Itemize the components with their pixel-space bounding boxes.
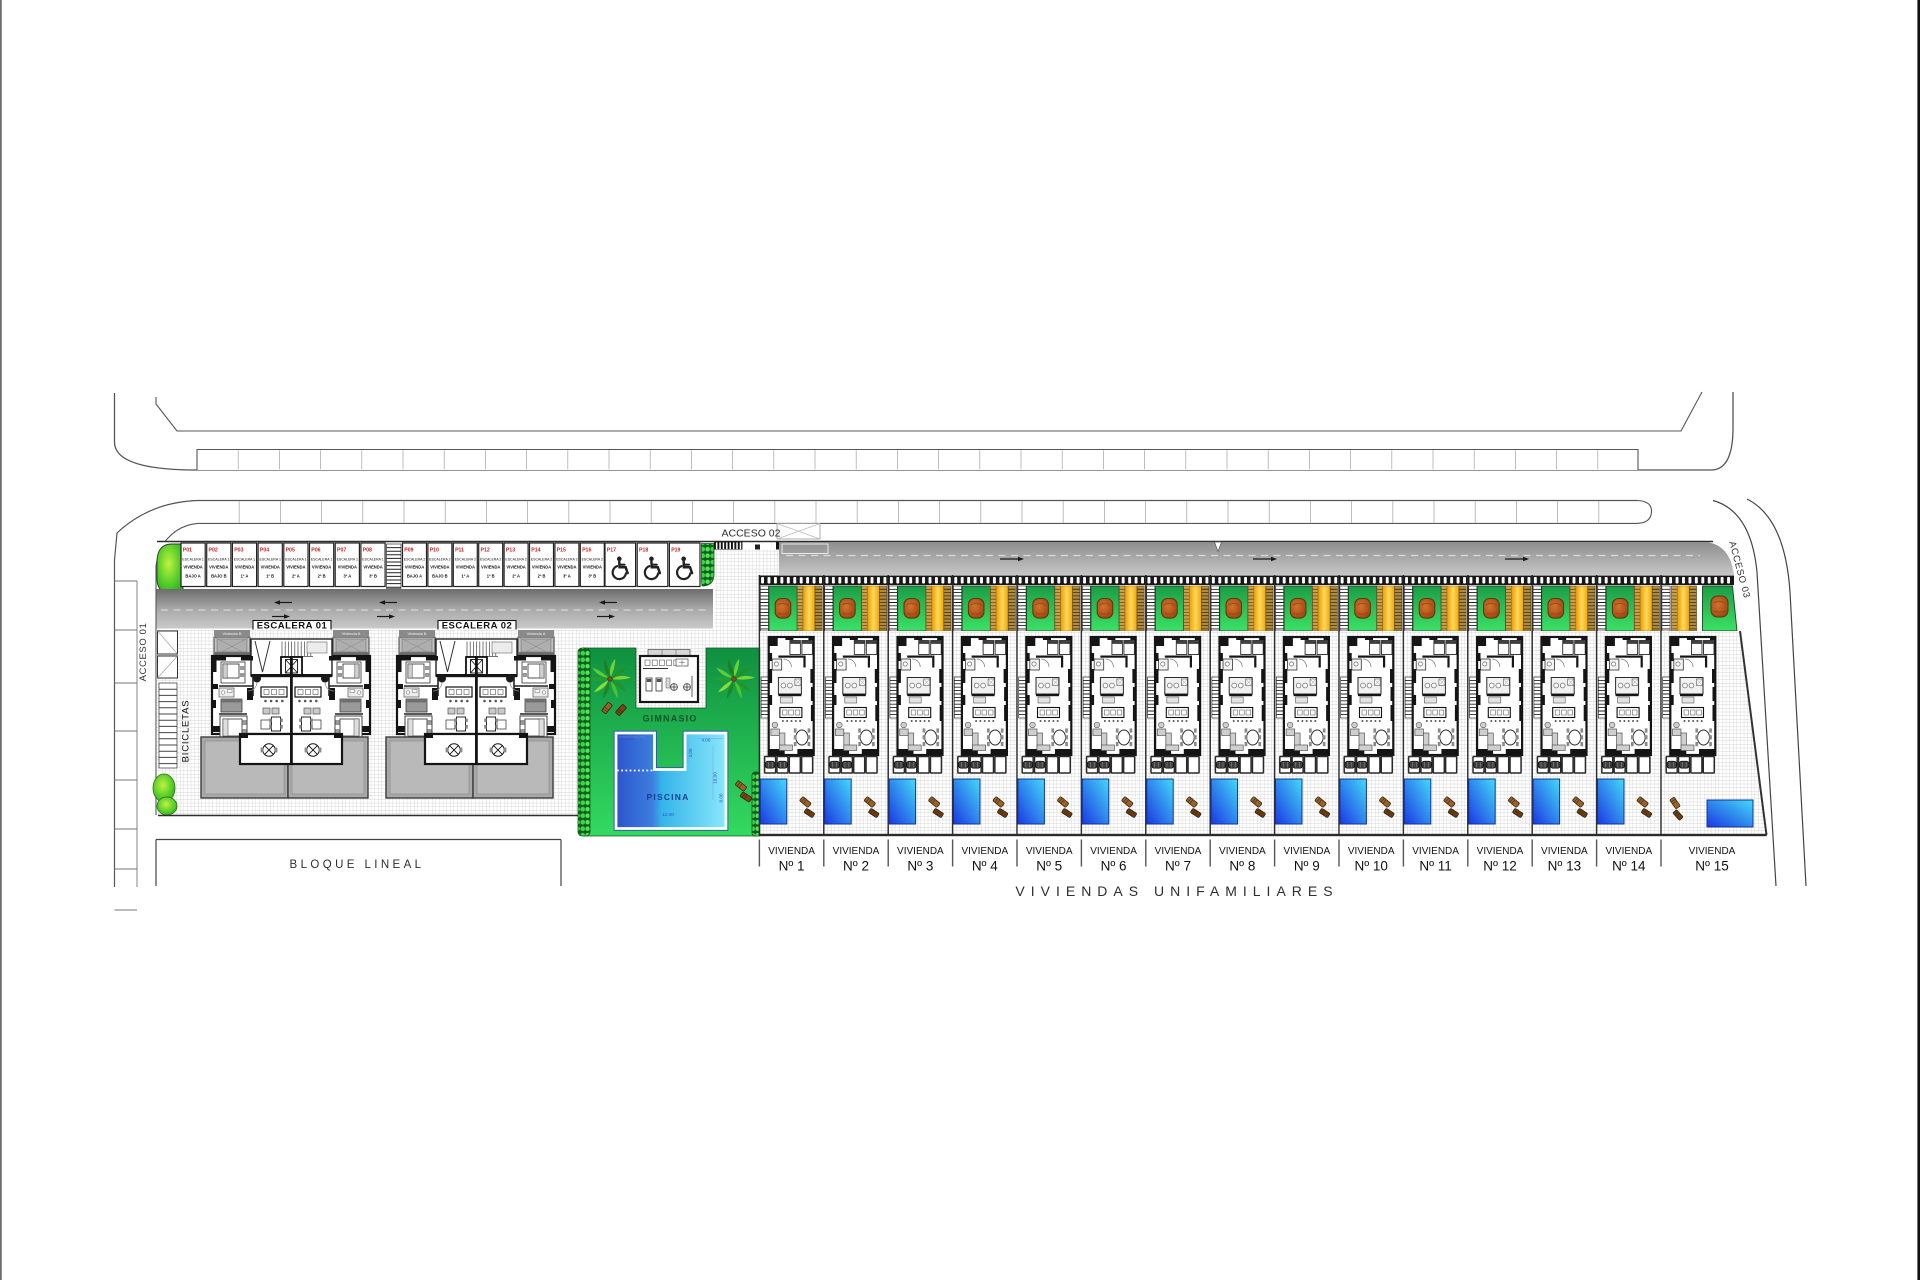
svg-text:P10: P10 [430,548,439,554]
svg-text:VIVIENDA: VIVIENDA [1219,846,1266,857]
svg-text:ACCESO 02: ACCESO 02 [722,528,781,540]
svg-text:ESCALERA 1: ESCALERA 1 [259,558,280,562]
svg-text:P08: P08 [363,548,372,554]
svg-text:Nº 11: Nº 11 [1419,859,1451,874]
svg-text:ESCALERA 2: ESCALERA 2 [455,558,476,562]
svg-text:P07: P07 [337,548,346,554]
svg-text:VIVIENDA: VIVIENDA [583,565,602,570]
svg-text:P05: P05 [286,548,295,554]
svg-text:12.00: 12.00 [662,812,674,817]
svg-text:1º A: 1º A [461,574,469,579]
svg-text:Nº 6: Nº 6 [1101,859,1127,874]
svg-text:P14: P14 [531,548,540,554]
svg-text:P06: P06 [311,548,320,554]
svg-text:Nº 4: Nº 4 [972,859,998,874]
svg-text:VIVIENDA: VIVIENDA [532,565,551,570]
svg-text:BICICLETAS: BICICLETAS [181,700,192,763]
svg-text:VIVIENDA: VIVIENDA [1348,846,1395,857]
svg-text:ESCALERA 2: ESCALERA 2 [404,558,425,562]
svg-text:VIVIENDA: VIVIENDA [1541,846,1588,857]
svg-text:VIVIENDA: VIVIENDA [1090,846,1137,857]
svg-text:Nº 10: Nº 10 [1354,859,1387,874]
svg-text:VIVIENDA: VIVIENDA [1155,846,1202,857]
svg-text:3º A: 3º A [563,574,571,579]
svg-text:10.00: 10.00 [713,772,718,784]
svg-text:Nº 3: Nº 3 [907,859,933,874]
svg-text:VIVIENDA: VIVIENDA [1026,846,1073,857]
svg-text:ESCALERA 1: ESCALERA 1 [311,558,332,562]
svg-text:VIVIENDA: VIVIENDA [363,565,382,570]
svg-text:Nº 7: Nº 7 [1165,859,1191,874]
svg-text:ESCALERA 2: ESCALERA 2 [556,558,577,562]
svg-text:VIVIENDA: VIVIENDA [405,565,424,570]
svg-text:VIVIENDA: VIVIENDA [235,565,254,570]
svg-text:4.00: 4.00 [625,736,634,741]
svg-text:P01: P01 [183,548,192,554]
svg-text:VIVIENDA: VIVIENDA [286,565,305,570]
svg-text:Nº 9: Nº 9 [1294,859,1320,874]
svg-text:P04: P04 [260,548,269,554]
svg-text:VIVIENDA: VIVIENDA [1689,846,1736,857]
svg-text:VIVIENDAS UNIFAMILIARES: VIVIENDAS UNIFAMILIARES [1015,883,1338,899]
svg-text:3º B: 3º B [369,574,377,579]
svg-text:ESCALERA 2: ESCALERA 2 [505,558,526,562]
svg-text:Nº 8: Nº 8 [1229,859,1255,874]
svg-text:VIVIENDA: VIVIENDA [1477,846,1524,857]
svg-text:Nº 14: Nº 14 [1612,859,1646,874]
svg-text:P17: P17 [607,548,616,554]
svg-text:VIVIENDA: VIVIENDA [768,846,815,857]
svg-text:VIVIENDA: VIVIENDA [961,846,1008,857]
svg-text:P19: P19 [671,548,680,554]
svg-text:P09: P09 [404,548,413,554]
svg-text:VIVIENDA: VIVIENDA [481,565,500,570]
svg-text:2º B: 2º B [538,574,546,579]
svg-text:VIVIENDA: VIVIENDA [261,565,280,570]
svg-text:P15: P15 [557,548,566,554]
svg-text:3º B: 3º B [588,574,596,579]
svg-text:ESCALERA 1: ESCALERA 1 [337,558,358,562]
svg-text:Nº 1: Nº 1 [779,859,805,874]
svg-text:PISCINA: PISCINA [647,792,690,802]
svg-text:1º B: 1º B [266,574,274,579]
svg-text:8.00: 8.00 [719,793,724,802]
svg-text:4.00: 4.00 [702,738,711,743]
svg-text:VIVIENDA: VIVIENDA [338,565,357,570]
svg-text:Nº 15: Nº 15 [1695,859,1728,874]
svg-text:P18: P18 [639,548,648,554]
svg-text:1º B: 1º B [487,574,495,579]
svg-text:2º A: 2º A [512,574,520,579]
svg-text:P16: P16 [582,548,591,554]
svg-text:BAJO B: BAJO B [432,574,448,579]
svg-text:P12: P12 [481,548,490,554]
svg-text:BLOQUE LINEAL: BLOQUE LINEAL [290,859,425,871]
svg-text:BAJO A: BAJO A [407,574,422,579]
svg-text:ESCALERA 1: ESCALERA 1 [208,558,229,562]
svg-text:P02: P02 [209,548,218,554]
svg-text:VIVIENDA: VIVIENDA [897,846,944,857]
svg-text:4.00: 4.00 [688,748,693,757]
svg-text:P03: P03 [234,548,243,554]
svg-text:VIVIENDA: VIVIENDA [312,565,331,570]
svg-text:ESCALERA 2: ESCALERA 2 [480,558,501,562]
svg-text:2º A: 2º A [292,574,300,579]
svg-text:VIVIENDA: VIVIENDA [1412,846,1459,857]
svg-text:VIVIENDA: VIVIENDA [430,565,449,570]
svg-text:VIVIENDA: VIVIENDA [183,565,202,570]
svg-text:ESCALERA 1: ESCALERA 1 [285,558,306,562]
svg-text:ESCALERA 2: ESCALERA 2 [582,558,603,562]
svg-text:Nº 12: Nº 12 [1483,859,1516,874]
svg-text:GIMNASIO: GIMNASIO [642,714,697,724]
svg-text:Nº 2: Nº 2 [843,859,869,874]
svg-text:ESCALERA 2: ESCALERA 2 [429,558,450,562]
svg-text:ESCALERA 1: ESCALERA 1 [182,558,203,562]
svg-text:BAJO A: BAJO A [185,574,200,579]
svg-text:VIVIENDA: VIVIENDA [833,846,880,857]
svg-text:VIVIENDA: VIVIENDA [209,565,228,570]
svg-text:1º A: 1º A [241,574,249,579]
svg-text:VIVIENDA: VIVIENDA [1605,846,1652,857]
svg-text:VIVIENDA: VIVIENDA [1283,846,1330,857]
svg-text:ESCALERA 2: ESCALERA 2 [531,558,552,562]
svg-text:ESCALERA 1: ESCALERA 1 [362,558,383,562]
svg-text:Nº 5: Nº 5 [1036,859,1062,874]
svg-text:ACCESO 01: ACCESO 01 [138,623,149,682]
svg-text:VIVIENDA: VIVIENDA [456,565,475,570]
svg-text:VIVIENDA: VIVIENDA [506,565,525,570]
svg-text:VIVIENDA: VIVIENDA [557,565,576,570]
svg-text:ESCALERA 1: ESCALERA 1 [234,558,255,562]
svg-text:BAJO B: BAJO B [211,574,227,579]
svg-text:P11: P11 [455,548,464,554]
svg-text:3º A: 3º A [343,574,351,579]
svg-text:2º B: 2º B [318,574,326,579]
svg-text:Nº 13: Nº 13 [1548,859,1581,874]
svg-text:P13: P13 [506,548,515,554]
